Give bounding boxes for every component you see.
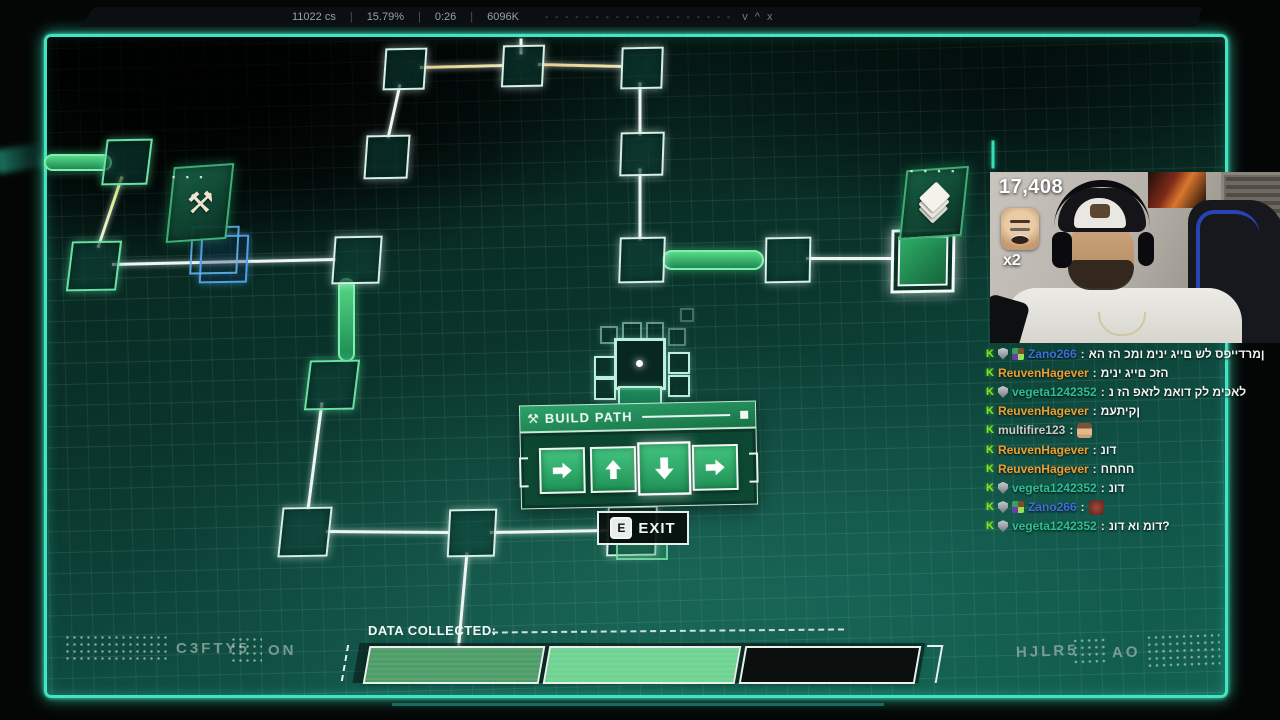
map-node[interactable] [383,48,428,91]
chat-colon: : [1093,404,1097,418]
sword-badge-icon: K [986,520,994,532]
chat-message: Kvegeta1242352:נוד [986,478,1280,497]
chat-overlay: KZano266:אה זה כמו מיני גיים של ספיידרמן… [986,344,1280,536]
arrow-right-button[interactable] [692,443,739,490]
header-square-icon [740,410,748,418]
chat-text: נוד [1109,481,1125,495]
exit-keycap: E [610,517,632,539]
face-emote [1077,423,1092,438]
hud-stats: 11022 cs|15.79%|0:26|6096K [292,11,519,23]
map-node[interactable] [620,47,663,90]
hud-stat: 6096K [487,11,519,23]
streamer-beard [1068,260,1134,290]
map-node[interactable] [765,237,812,284]
header-rule [643,414,731,418]
sword-badge-icon: K [986,405,994,417]
data-collected-label: DATA COLLECTED: [368,623,497,638]
hud-window-controls[interactable]: v ^ x [742,11,774,23]
map-node[interactable] [618,237,666,284]
chat-text: מעתיקן [1101,404,1140,418]
chat-colon: : [1069,423,1073,437]
headphone-left [1052,232,1072,268]
chat-username[interactable]: vegeta1242352 [1012,519,1097,533]
digger-unit[interactable] [585,300,705,410]
path-line [97,176,124,248]
dot-matrix-right-small [1072,636,1107,665]
chat-text: אה זה כמו מיני גיים של ספיידרמן [1089,347,1265,361]
dialog-body [520,428,759,510]
webcam-overlay: 17,408 x2 [990,172,1280,343]
layers-card-dots: ▪ ▪ ▪ ▪ [910,166,958,176]
counter-multiplier: x2 [1003,252,1021,270]
exit-button[interactable]: E EXIT [597,511,689,545]
map-node[interactable] [101,139,153,186]
chat-username[interactable]: vegeta1242352 [1012,481,1097,495]
shield-badge-icon [998,386,1008,398]
streamer-head [1056,188,1156,308]
path-line [806,257,892,260]
left-status: ON [268,642,297,659]
chat-message: KReuvenHagever:חחחח [986,459,1280,478]
chat-username[interactable]: ReuvenHagever [998,404,1089,418]
path-line [326,530,450,534]
shield-badge-icon [998,348,1008,360]
hammer-icon: ⚒ [527,412,539,425]
risitas-emote [1001,208,1039,250]
path-line [639,168,642,240]
progress-segment-filled [543,646,742,684]
shield-badge-icon [998,520,1008,532]
red-emote [1089,500,1104,515]
top-hud-bar: 11022 cs|15.79%|0:26|6096K - - - - - - -… [80,7,1202,27]
arrow-right-button[interactable] [539,447,586,494]
shield-badge-icon [998,501,1008,513]
dot-matrix-left-small [230,636,262,664]
chat-username[interactable]: ReuvenHagever [998,443,1089,457]
right-code: HJLR5 [1016,642,1079,661]
map-node[interactable] [501,45,545,88]
layers-card[interactable] [899,166,969,240]
chat-message: Kvegeta1242352:נ זה פאזל מאוד קל מיכאל [986,382,1280,401]
chat-username[interactable]: Zano266 [1028,347,1077,361]
digger-core-light [636,360,643,367]
path-line [490,529,608,534]
chat-text: מיני גיים כזה [1101,366,1169,380]
right-status: AO [1112,644,1141,662]
chat-username[interactable]: multifire123 [998,423,1065,437]
path-line [992,140,995,168]
hud-separator: | [470,11,473,23]
chat-colon: : [1101,481,1105,495]
path-line [420,64,504,69]
chat-colon: : [1081,347,1085,361]
map-node[interactable] [66,241,122,292]
chat-message: Kmultifire123: [986,421,1280,440]
subscriber-badge-icon [1012,501,1024,513]
chat-colon: : [1093,443,1097,457]
hud-stat: 11022 cs [292,11,336,23]
hud-separator: | [418,11,421,23]
chat-username[interactable]: ReuvenHagever [998,366,1089,380]
sword-badge-icon: K [986,386,994,398]
chat-message: KZano266:אה זה כמו מיני גיים של ספיידרמן [986,344,1280,363]
progress-segment-filled [363,646,546,684]
chat-colon: : [1093,462,1097,476]
chat-username[interactable]: Zano266 [1028,500,1077,514]
sword-badge-icon: K [986,501,994,513]
map-node[interactable] [277,507,332,558]
hammer-pick-icon: ⚒ [185,185,216,222]
connector-pill [44,154,112,171]
chat-message: KReuvenHagever:נוד [986,440,1280,459]
chat-text: נוד או מוד? [1109,519,1170,533]
chat-message: KZano266: [986,498,1280,517]
arrow-up-button[interactable] [590,446,637,493]
sword-badge-icon: K [986,367,994,379]
chat-text: נ זה פאזל מאוד קל מיכאל [1109,385,1246,399]
exit-tab [616,543,668,560]
chat-message: Kvegeta1242352:נוד או מוד? [986,517,1280,536]
path-line [307,402,324,509]
shield-badge-icon [998,482,1008,494]
hud-stat: 0:26 [435,11,456,23]
arrow-down-button[interactable] [637,441,691,495]
chat-colon: : [1101,385,1105,399]
map-node[interactable] [199,235,250,284]
dialog-title: BUILD PATH [545,409,633,426]
sword-badge-icon: K [986,348,994,360]
headphone-right [1138,232,1154,266]
connector-pill [662,250,764,270]
hud-stat: 15.79% [367,11,404,23]
build-path-dialog: ⚒ BUILD PATH [519,401,758,510]
chat-username[interactable]: vegeta1242352 [1012,385,1097,399]
sword-badge-icon: K [986,444,994,456]
exit-label: EXIT [638,520,675,537]
dot-matrix-left-large [64,634,168,664]
chat-message: KReuvenHagever:מעתיקן [986,402,1280,421]
path-line [538,63,623,68]
map-node[interactable] [331,236,382,285]
map-node[interactable] [304,360,360,411]
sword-badge-icon: K [986,482,994,494]
map-node[interactable] [619,132,665,177]
dot-matrix-right-large [1145,632,1220,671]
connector-pill [338,278,355,362]
progress-segment-empty [739,646,922,684]
hud-dashes: - - - - - - - - - - - - - - - - - - - [545,12,732,23]
chat-message: KReuvenHagever:מיני גיים כזה [986,363,1280,382]
map-node[interactable] [363,135,410,180]
chat-colon: : [1093,366,1097,380]
path-line [387,84,402,139]
chat-colon: : [1101,519,1105,533]
map-node[interactable] [447,509,498,558]
sword-badge-icon: K [986,463,994,475]
path-line [639,82,642,135]
subscriber-badge-icon [1012,348,1024,360]
stream-screen: ⚒ ▪ ▪ ▪ ▪ ▪ ▪ ▪ ⚒ BUILD PATH E EXIT [0,0,1280,720]
mining-card-dots: ▪ ▪ ▪ [172,172,207,182]
counter-value: 17,408 [999,176,1063,199]
chat-text: חחחח [1101,462,1135,476]
digger-core [614,338,666,390]
chat-text: נוד [1101,443,1117,457]
chat-username[interactable]: ReuvenHagever [998,462,1089,476]
chat-colon: : [1081,500,1085,514]
hud-separator: | [350,11,353,23]
sword-badge-icon: K [986,424,994,436]
layers-icon [916,187,951,219]
